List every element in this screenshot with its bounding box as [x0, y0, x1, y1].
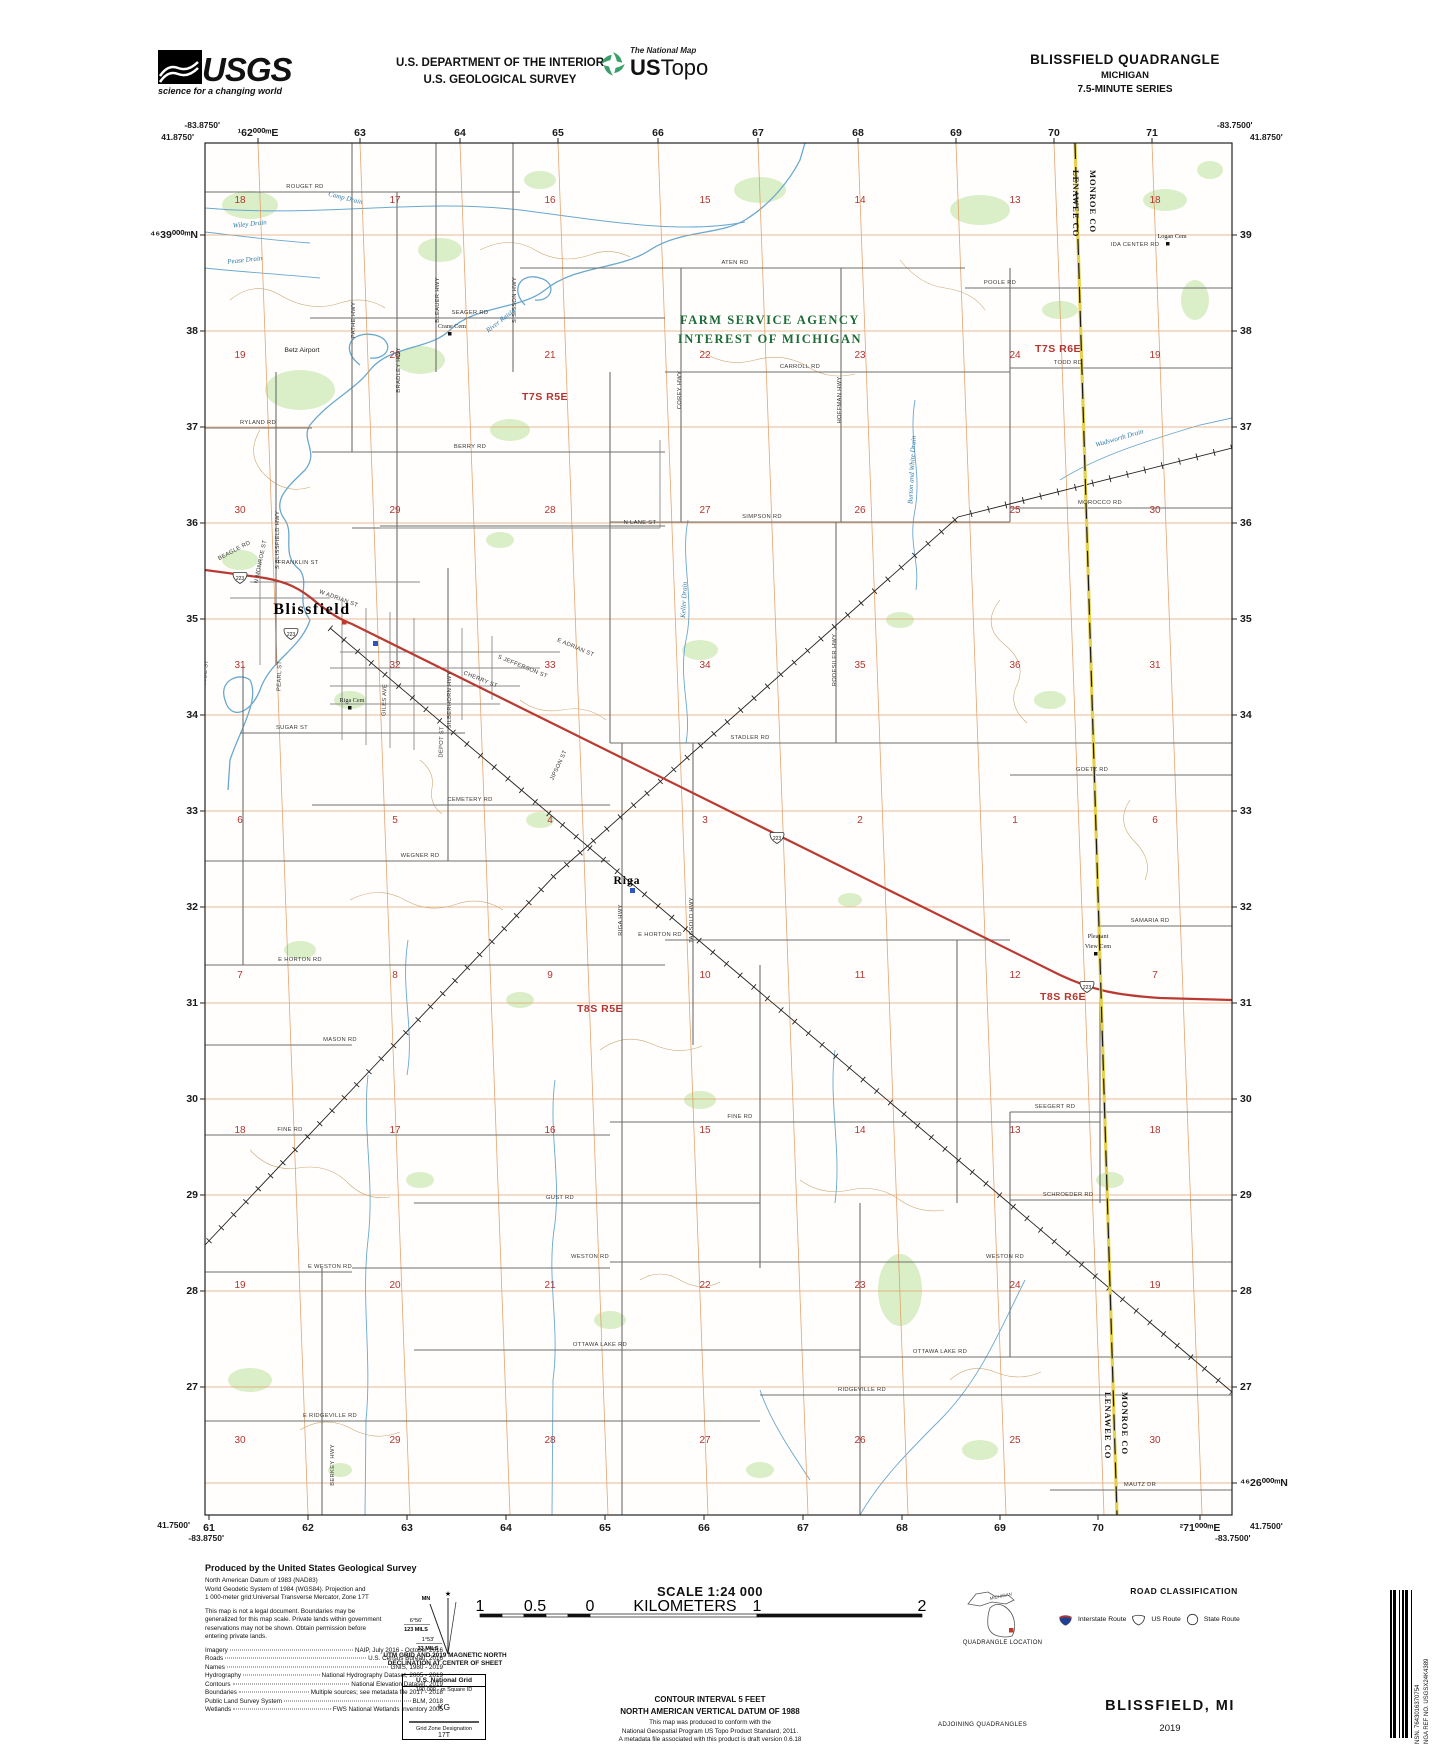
svg-text:8: 8	[392, 970, 398, 981]
svg-text:19: 19	[234, 1280, 246, 1291]
svg-text:23: 23	[854, 1280, 866, 1291]
barcode-nga: NGA REF NO. USGSX24K4389	[1423, 1588, 1432, 1744]
svg-text:FINE RD: FINE RD	[727, 1114, 752, 1120]
svg-text:29: 29	[186, 1189, 198, 1201]
svg-text:SCHROEDER RD: SCHROEDER RD	[1043, 1192, 1094, 1198]
svg-text:32: 32	[186, 901, 198, 913]
svg-text:30: 30	[1240, 1093, 1252, 1105]
cemetery-symbol	[448, 332, 452, 336]
svg-text:34: 34	[1240, 709, 1252, 721]
svg-text:Logan Cem: Logan Cem	[1157, 233, 1186, 240]
svg-text:41.7500': 41.7500'	[1250, 1521, 1283, 1531]
svg-text:S SISSON HWY: S SISSON HWY	[512, 277, 518, 323]
svg-text:WEGNER RD: WEGNER RD	[401, 853, 440, 859]
svg-text:BERKEY HWY: BERKEY HWY	[330, 1444, 336, 1486]
svg-text:28: 28	[186, 1285, 198, 1297]
svg-text:71: 71	[1146, 127, 1158, 139]
svg-text:63: 63	[354, 127, 366, 139]
svg-text:21: 21	[544, 350, 556, 361]
svg-text:T8S R6E: T8S R6E	[1040, 991, 1086, 1003]
svg-text:CARROLL RD: CARROLL RD	[780, 364, 820, 370]
svg-text:FINE RD: FINE RD	[277, 1127, 302, 1133]
contour-note: CONTOUR INTERVAL 5 FEET NORTH AMERICAN V…	[530, 1694, 890, 1717]
svg-text:19: 19	[1149, 1280, 1161, 1291]
svg-text:27: 27	[699, 1435, 711, 1446]
svg-text:GOETZ RD: GOETZ RD	[1076, 767, 1108, 773]
svg-text:17: 17	[389, 1125, 401, 1136]
svg-text:64: 64	[454, 127, 466, 139]
svg-text:RIDGEVILLE RD: RIDGEVILLE RD	[838, 1387, 886, 1393]
svg-text:69: 69	[994, 1522, 1006, 1534]
svg-text:32: 32	[389, 660, 401, 671]
sheet-name: BLISSFIELD, MI	[1070, 1698, 1270, 1714]
school-symbol	[630, 888, 635, 893]
svg-text:34: 34	[186, 709, 198, 721]
svg-text:18: 18	[1149, 1125, 1161, 1136]
svg-text:19: 19	[234, 350, 246, 361]
cemetery-symbol	[348, 706, 352, 710]
svg-text:28: 28	[544, 505, 556, 516]
svg-text:69: 69	[950, 127, 962, 139]
svg-text:SUGAR ST: SUGAR ST	[276, 725, 308, 731]
barcode	[1390, 1590, 1414, 1738]
svg-text:KILOMETERS: KILOMETERS	[633, 1600, 736, 1615]
svg-text:ROUGET RD: ROUGET RD	[286, 184, 323, 190]
svg-text:28: 28	[544, 1435, 556, 1446]
svg-text:223: 223	[236, 576, 245, 582]
svg-text:6: 6	[237, 815, 243, 826]
svg-text:64: 64	[500, 1522, 512, 1534]
svg-text:20: 20	[389, 1280, 401, 1291]
svg-text:TODD RD: TODD RD	[1054, 360, 1082, 366]
svg-text:T7S R6E: T7S R6E	[1035, 343, 1081, 355]
svg-text:6°56': 6°56'	[410, 1618, 422, 1624]
svg-text:POOLE RD: POOLE RD	[984, 280, 1016, 286]
svg-text:E HORTON RD: E HORTON RD	[278, 957, 322, 963]
svg-text:ATEN RD: ATEN RD	[721, 260, 748, 266]
svg-text:0.5: 0.5	[524, 1600, 546, 1615]
usng-square-id: KG	[403, 1702, 485, 1712]
svg-text:Crane Cem: Crane Cem	[438, 323, 466, 330]
svg-text:3: 3	[702, 815, 708, 826]
svg-text:-83.7500': -83.7500'	[1217, 120, 1253, 130]
svg-text:10: 10	[699, 970, 711, 981]
svg-text:35: 35	[1240, 613, 1252, 625]
svg-text:Blissfield: Blissfield	[273, 601, 350, 618]
svg-text:223: 223	[1083, 985, 1092, 991]
svg-text:30: 30	[234, 1435, 246, 1446]
svg-text:35: 35	[854, 660, 866, 671]
svg-text:-83.8750': -83.8750'	[184, 120, 220, 130]
svg-text:E HORTON RD: E HORTON RD	[638, 932, 682, 938]
svg-text:33: 33	[1240, 805, 1252, 817]
usng-divider	[409, 1721, 479, 1723]
svg-text:31: 31	[1240, 997, 1252, 1009]
svg-text:STADLER RD: STADLER RD	[730, 735, 769, 741]
svg-text:38: 38	[1240, 325, 1252, 337]
svg-text:18: 18	[234, 195, 246, 206]
svg-text:68: 68	[852, 127, 864, 139]
road-classification-legend: ROAD CLASSIFICATION Interstate Route US …	[1058, 1586, 1310, 1626]
svg-text:1°53': 1°53'	[422, 1637, 434, 1643]
sheet-year: 2019	[1070, 1723, 1270, 1734]
state-route-label: State Route	[1204, 1616, 1240, 1623]
svg-text:TAGSOLD HWY: TAGSOLD HWY	[689, 897, 695, 943]
svg-text:25: 25	[1009, 1435, 1021, 1446]
svg-text:31: 31	[1149, 660, 1161, 671]
svg-text:IDA CENTER RD: IDA CENTER RD	[1111, 242, 1160, 248]
svg-text:OTTAWA LAKE RD: OTTAWA LAKE RD	[913, 1349, 967, 1355]
svg-text:6: 6	[1152, 815, 1158, 826]
svg-text:-83.8750': -83.8750'	[188, 1533, 224, 1543]
scale-bars: 10.50KILOMETERS12	[470, 1600, 950, 1700]
svg-text:WESTON RD: WESTON RD	[571, 1254, 609, 1260]
svg-text:62: 62	[302, 1522, 314, 1534]
svg-text:DEPOT ST: DEPOT ST	[438, 726, 445, 758]
svg-text:View Cem: View Cem	[1085, 943, 1111, 950]
svg-text:36: 36	[1009, 660, 1021, 671]
svg-text:41.8750': 41.8750'	[1250, 132, 1283, 142]
svg-text:32: 32	[1240, 901, 1252, 913]
svg-text:RIGA HWY: RIGA HWY	[618, 904, 624, 935]
svg-text:Riga: Riga	[614, 875, 641, 887]
svg-text:16: 16	[544, 195, 556, 206]
svg-text:66: 66	[652, 127, 664, 139]
svg-text:223: 223	[773, 836, 782, 842]
svg-text:30: 30	[1149, 1435, 1161, 1446]
svg-text:22: 22	[699, 350, 711, 361]
svg-text:HOFFMAN HWY: HOFFMAN HWY	[837, 376, 843, 423]
svg-text:GUST RD: GUST RD	[546, 1195, 574, 1201]
vertical-datum: NORTH AMERICAN VERTICAL DATUM OF 1988	[530, 1706, 890, 1718]
svg-text:35: 35	[186, 613, 198, 625]
us-route-label: US Route	[1151, 1616, 1180, 1623]
svg-text:SAMARIA RD: SAMARIA RD	[1131, 918, 1170, 924]
svg-text:66: 66	[698, 1522, 710, 1534]
svg-text:PEARL ST: PEARL ST	[276, 661, 283, 692]
svg-text:PATHE HWY: PATHE HWY	[351, 302, 357, 338]
svg-text:Pleasant: Pleasant	[1088, 933, 1109, 940]
quadloc-caption: QUADRANGLE LOCATION	[930, 1640, 1075, 1646]
svg-text:39: 39	[1240, 229, 1252, 241]
state-route-icon	[1186, 1613, 1199, 1626]
svg-text:LENAWEE CO: LENAWEE CO	[1103, 1392, 1113, 1459]
svg-text:⁴⁶26⁰⁰⁰ᵐN: ⁴⁶26⁰⁰⁰ᵐN	[1240, 1477, 1288, 1489]
svg-text:37: 37	[186, 421, 198, 433]
svg-text:29: 29	[389, 1435, 401, 1446]
svg-text:30: 30	[234, 505, 246, 516]
interstate-route-label: Interstate Route	[1078, 1616, 1126, 1623]
svg-text:65: 65	[599, 1522, 611, 1534]
svg-text:25: 25	[1009, 505, 1021, 516]
svg-text:1: 1	[753, 1600, 762, 1615]
svg-text:41.8750': 41.8750'	[161, 132, 194, 142]
svg-text:36: 36	[186, 517, 198, 529]
interstate-shield-icon	[1058, 1613, 1073, 1626]
svg-text:FARM SERVICE AGENCY: FARM SERVICE AGENCY	[680, 313, 860, 327]
contour-interval: CONTOUR INTERVAL 5 FEET	[530, 1694, 890, 1706]
svg-text:LENAWEE CO: LENAWEE CO	[1071, 170, 1081, 237]
svg-text:SEEGERT RD: SEEGERT RD	[1035, 1104, 1075, 1110]
svg-text:T7S R5E: T7S R5E	[522, 391, 568, 403]
conformance-note: This map was produced to conform with th…	[490, 1719, 930, 1745]
svg-text:67: 67	[797, 1522, 809, 1534]
svg-text:34: 34	[699, 660, 711, 671]
svg-text:COREY HWY: COREY HWY	[677, 371, 683, 409]
topo-map: 1817161514131819202122232419302928272625…	[0, 0, 1445, 1746]
svg-text:RODESILER HWY: RODESILER HWY	[832, 634, 838, 687]
svg-text:23: 23	[854, 350, 866, 361]
svg-text:70: 70	[1092, 1522, 1104, 1534]
quadrangle-location-map: MICHIGAN	[962, 1584, 1042, 1638]
svg-text:SIMPSON RD: SIMPSON RD	[742, 514, 782, 520]
svg-text:27: 27	[186, 1381, 198, 1393]
svg-text:18: 18	[1149, 195, 1161, 206]
svg-text:68: 68	[896, 1522, 908, 1534]
svg-text:123 MILS: 123 MILS	[404, 1627, 428, 1633]
svg-text:13: 13	[1009, 1125, 1021, 1136]
building-symbol	[342, 620, 347, 625]
svg-text:19: 19	[1149, 350, 1161, 361]
svg-text:31: 31	[186, 997, 198, 1009]
svg-text:26: 26	[854, 505, 866, 516]
svg-text:GILES AVE: GILES AVE	[381, 684, 388, 716]
svg-text:26: 26	[854, 1435, 866, 1446]
svg-text:7: 7	[1152, 970, 1158, 981]
svg-text:27: 27	[699, 505, 711, 516]
svg-text:70: 70	[1048, 127, 1060, 139]
svg-text:OTTAWA LAKE RD: OTTAWA LAKE RD	[573, 1342, 627, 1348]
svg-text:13: 13	[1009, 195, 1021, 206]
svg-text:CEMETERY RD: CEMETERY RD	[447, 797, 492, 803]
svg-text:MASON RD: MASON RD	[323, 1037, 357, 1043]
credits-title: Produced by the United States Geological…	[205, 1562, 443, 1574]
svg-text:MN: MN	[422, 1596, 431, 1602]
svg-text:11: 11	[855, 970, 866, 981]
sheet-title-block: BLISSFIELD, MI 2019	[1070, 1698, 1270, 1734]
svg-text:MOROCCO RD: MOROCCO RD	[1078, 500, 1122, 506]
svg-text:17: 17	[389, 195, 401, 206]
svg-text:1: 1	[1012, 815, 1018, 826]
svg-text:30: 30	[186, 1093, 198, 1105]
svg-text:RYLAND RD: RYLAND RD	[240, 420, 276, 426]
svg-text:⁴⁶39⁰⁰⁰ᵐN: ⁴⁶39⁰⁰⁰ᵐN	[150, 229, 198, 241]
svg-text:22: 22	[699, 1280, 711, 1291]
svg-text:INTEREST OF MICHIGAN: INTEREST OF MICHIGAN	[678, 332, 862, 346]
svg-text:2: 2	[918, 1600, 927, 1615]
svg-text:28: 28	[1240, 1285, 1252, 1297]
svg-text:5: 5	[392, 815, 398, 826]
svg-text:33: 33	[544, 660, 556, 671]
svg-text:7: 7	[237, 970, 243, 981]
svg-text:1: 1	[476, 1600, 485, 1615]
roadclass-shields: Interstate Route US Route State Route	[1058, 1613, 1310, 1626]
svg-text:SILBERHORN HWY: SILBERHORN HWY	[447, 671, 453, 728]
svg-text:MAUTZ DR: MAUTZ DR	[1124, 1482, 1156, 1488]
svg-text:4: 4	[547, 815, 553, 826]
svg-text:BLEAUER HWY: BLEAUER HWY	[435, 277, 441, 323]
svg-text:29: 29	[1240, 1189, 1252, 1201]
svg-text:63: 63	[401, 1522, 413, 1534]
us-route-shield-icon	[1131, 1613, 1146, 1626]
svg-text:BRADLEY HWY: BRADLEY HWY	[396, 347, 402, 392]
svg-text:N LANE ST: N LANE ST	[624, 520, 657, 526]
quad-location-marker	[1009, 1628, 1014, 1633]
svg-text:MONROE CO: MONROE CO	[1088, 170, 1098, 233]
svg-text:24: 24	[1009, 350, 1021, 361]
svg-text:¹62⁰⁰⁰ᵐE: ¹62⁰⁰⁰ᵐE	[238, 127, 279, 139]
adjoining-caption: ADJOINING QUADRANGLES	[900, 1721, 1065, 1728]
svg-text:MONROE CO: MONROE CO	[1120, 1392, 1130, 1455]
usgs-topo-sheet: USGS science for a changing world U.S. D…	[0, 0, 1445, 1746]
svg-text:Betz Airport: Betz Airport	[284, 347, 319, 354]
svg-text:24: 24	[1009, 1280, 1021, 1291]
svg-text:16: 16	[544, 1125, 556, 1136]
svg-text:29: 29	[389, 505, 401, 516]
svg-text:S BLISSFIELD HWY: S BLISSFIELD HWY	[275, 511, 281, 569]
svg-text:65: 65	[552, 127, 564, 139]
svg-text:15: 15	[699, 195, 711, 206]
barcode-nsn: NSN. 7643016370754	[1414, 1588, 1423, 1744]
svg-text:9: 9	[547, 970, 553, 981]
svg-text:★: ★	[445, 1590, 451, 1598]
svg-text:15: 15	[699, 1125, 711, 1136]
svg-text:18: 18	[234, 1125, 246, 1136]
svg-text:14: 14	[854, 1125, 866, 1136]
svg-text:12: 12	[1009, 970, 1021, 981]
svg-text:WESTON RD: WESTON RD	[986, 1254, 1024, 1260]
svg-text:30: 30	[1149, 505, 1161, 516]
svg-text:41.7500': 41.7500'	[157, 1520, 190, 1530]
svg-text:SEAGER RD: SEAGER RD	[452, 310, 489, 316]
svg-text:FRANKLIN ST: FRANKLIN ST	[278, 560, 319, 566]
usng-zone: 17T	[403, 1732, 485, 1739]
svg-text:27: 27	[1240, 1381, 1252, 1393]
barcode-text: NSN. 7643016370754 NGA REF NO. USGSX24K4…	[1414, 1588, 1432, 1744]
cemetery-symbol	[1166, 242, 1170, 246]
svg-text:Riga Cem: Riga Cem	[340, 697, 365, 704]
svg-text:33: 33	[186, 805, 198, 817]
svg-text:67: 67	[752, 127, 764, 139]
svg-text:0: 0	[586, 1600, 595, 1615]
svg-text:21: 21	[544, 1280, 556, 1291]
roadclass-title: ROAD CLASSIFICATION	[1058, 1586, 1310, 1596]
svg-text:-83.7500': -83.7500'	[1215, 1533, 1251, 1543]
svg-text:223: 223	[287, 632, 296, 638]
svg-text:E WESTON RD: E WESTON RD	[308, 1264, 352, 1270]
svg-text:37: 37	[1240, 421, 1252, 433]
scale-title: SCALE 1:24 000	[560, 1584, 860, 1599]
svg-text:BERRY RD: BERRY RD	[454, 444, 486, 450]
svg-text:38: 38	[186, 325, 198, 337]
svg-text:T8S R5E: T8S R5E	[577, 1003, 623, 1015]
svg-text:E RIDGEVILLE RD: E RIDGEVILLE RD	[303, 1413, 357, 1419]
svg-text:36: 36	[1240, 517, 1252, 529]
school-symbol	[373, 641, 378, 646]
cemetery-symbol	[1094, 952, 1098, 956]
svg-text:2: 2	[857, 815, 863, 826]
adjoining-quadrangles-grid	[925, 1656, 1009, 1718]
svg-text:14: 14	[854, 195, 866, 206]
svg-text:31: 31	[234, 660, 246, 671]
